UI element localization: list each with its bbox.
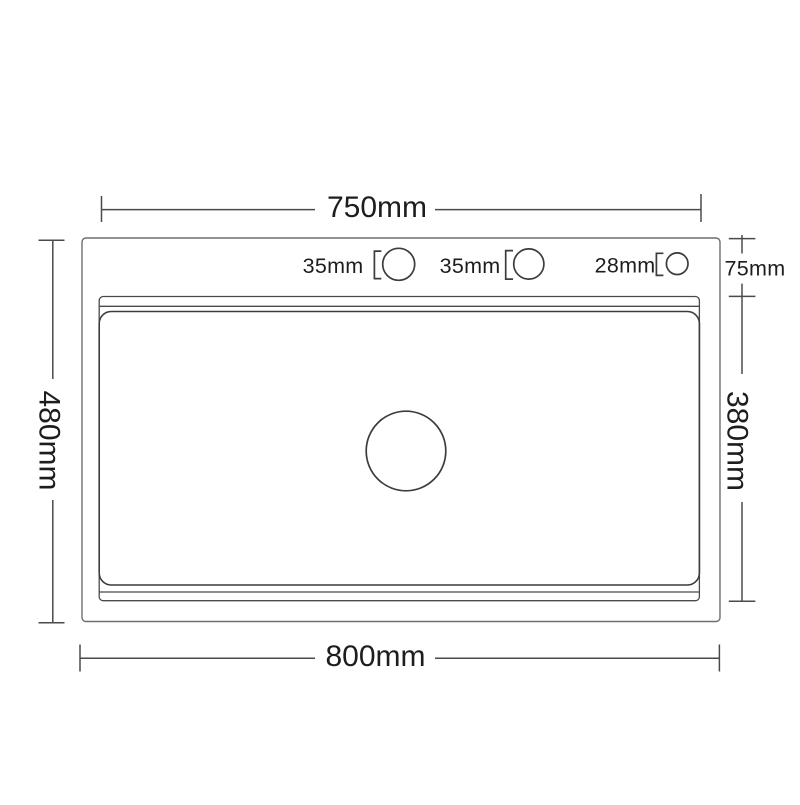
svg-text:750mm: 750mm — [327, 191, 427, 224]
svg-text:480mm: 480mm — [33, 390, 66, 490]
svg-text:35mm: 35mm — [440, 254, 501, 278]
svg-text:75mm: 75mm — [725, 256, 786, 280]
svg-text:800mm: 800mm — [325, 640, 425, 673]
svg-text:380mm: 380mm — [721, 391, 754, 491]
svg-text:35mm: 35mm — [303, 254, 364, 278]
svg-text:28mm: 28mm — [595, 253, 656, 277]
